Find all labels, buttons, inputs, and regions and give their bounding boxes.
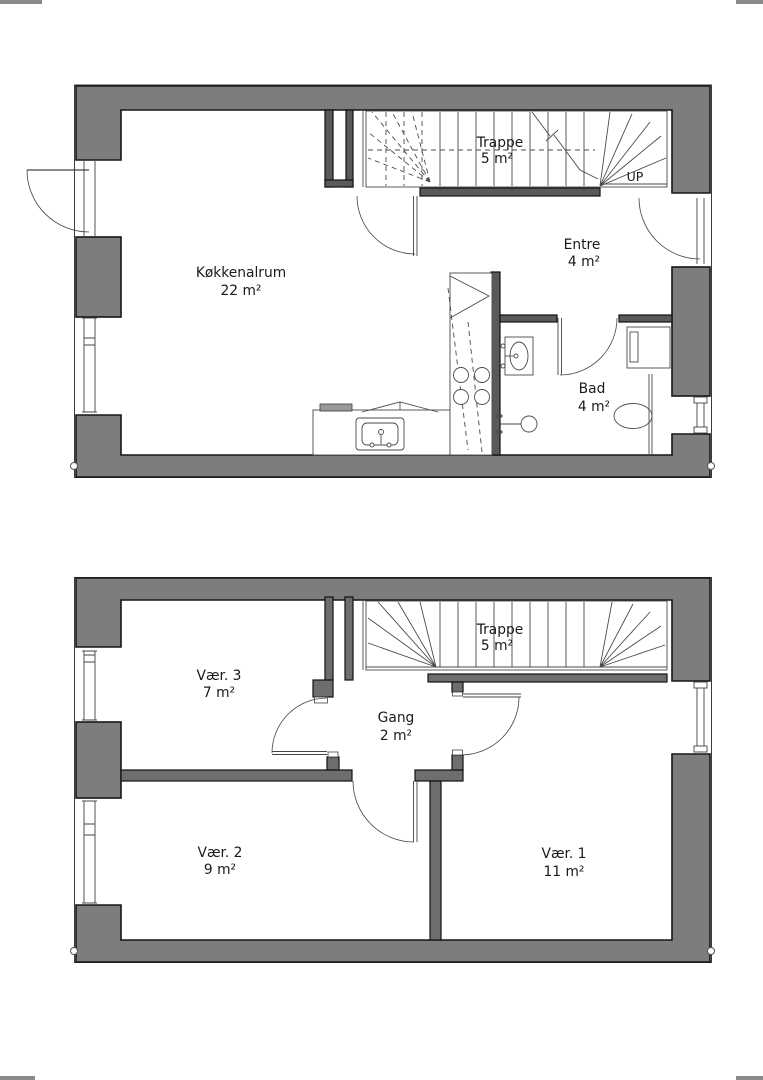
room-label-vaer2: Vær. 2 [198,845,243,861]
vaer3-door [272,698,327,755]
stair-side-wall [420,188,600,196]
garden-door [27,161,95,236]
vaer2-door [353,781,417,842]
room-label-kokkenalrum: Køkkenalrum [196,265,286,281]
burner [475,390,490,405]
vaer1-window [694,682,707,752]
toilet [614,404,652,429]
vaer2-window [82,801,97,903]
stair-up-label: UP [627,169,644,184]
vanity-cabinet [627,327,670,368]
stair-walk-line [532,112,598,179]
kitchen-window [82,318,97,412]
room-area-trappe-1: 5 m² [481,151,513,167]
vaer1-vaer2-divider [430,781,441,940]
shower-screen [649,374,652,455]
room-label-trappe-2: Trappe [476,622,524,638]
room-label-entre: Entre [564,237,601,253]
front-door [639,198,704,264]
stair-side-wall [428,674,667,682]
room-area-kokkenalrum: 22 m² [221,283,262,299]
floor-plan-sheet: Køkkenalrum 22 m² Trappe 5 m² Entre 4 m²… [0,0,763,1080]
room-area-trappe-2: 5 m² [481,638,513,654]
winder-treads-left [368,602,436,667]
room-area-vaer2: 9 m² [204,862,236,878]
room-area-entre: 4 m² [568,254,600,270]
duct-wall [345,597,353,680]
tall-units [448,273,492,455]
interior-walls [121,597,667,940]
duct-wall [325,110,333,187]
kitchen-sink [356,418,404,450]
burner [454,390,469,405]
shower [495,374,652,455]
duct-wall [325,597,333,680]
room-label-bad: Bad [579,381,606,397]
room-area-gang: 2 m² [380,728,412,744]
ground-floor-plan: Køkkenalrum 22 m² Trappe 5 m² Entre 4 m²… [27,85,715,478]
room-label-vaer3: Vær. 3 [197,668,242,684]
bath-window [694,397,707,433]
room-label-vaer1: Vær. 1 [542,846,587,862]
bath-door [558,318,617,375]
duct-wall [346,110,353,187]
room-label-gang: Gang [378,710,415,726]
hob [320,404,352,411]
kitchen-fixtures [313,273,492,455]
stair-room-door [357,196,417,256]
room-area-vaer3: 7 m² [203,685,235,701]
vaer3-window [82,651,97,720]
upper-floor-plan: Vær. 3 7 m² Trappe 5 m² Gang 2 m² Vær. 2… [71,578,715,963]
bedroom-partition-wall [121,770,352,781]
bath-sink [501,337,533,375]
floor-plans-canvas: Køkkenalrum 22 m² Trappe 5 m² Entre 4 m²… [0,0,763,1080]
burner [454,368,469,383]
doors [27,161,704,375]
winder-treads-right [600,602,665,667]
room-label-trappe-1: Trappe [476,135,524,151]
stair-landing-door [461,694,521,755]
burner [475,368,490,383]
room-area-bad: 4 m² [578,399,610,415]
room-area-vaer1: 11 m² [544,864,585,880]
